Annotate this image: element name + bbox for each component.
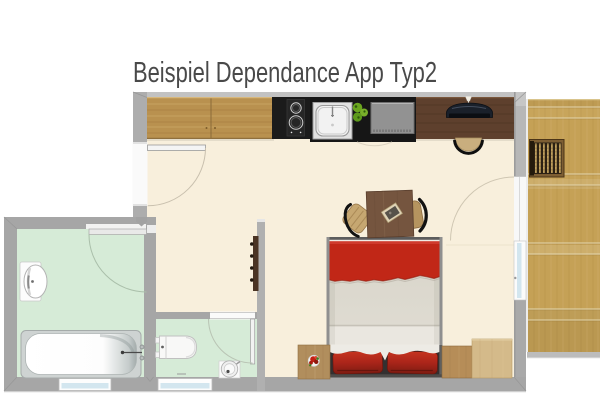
svg-text:Beispiel Dependance App Typ2: Beispiel Dependance App Typ2 (133, 57, 437, 89)
